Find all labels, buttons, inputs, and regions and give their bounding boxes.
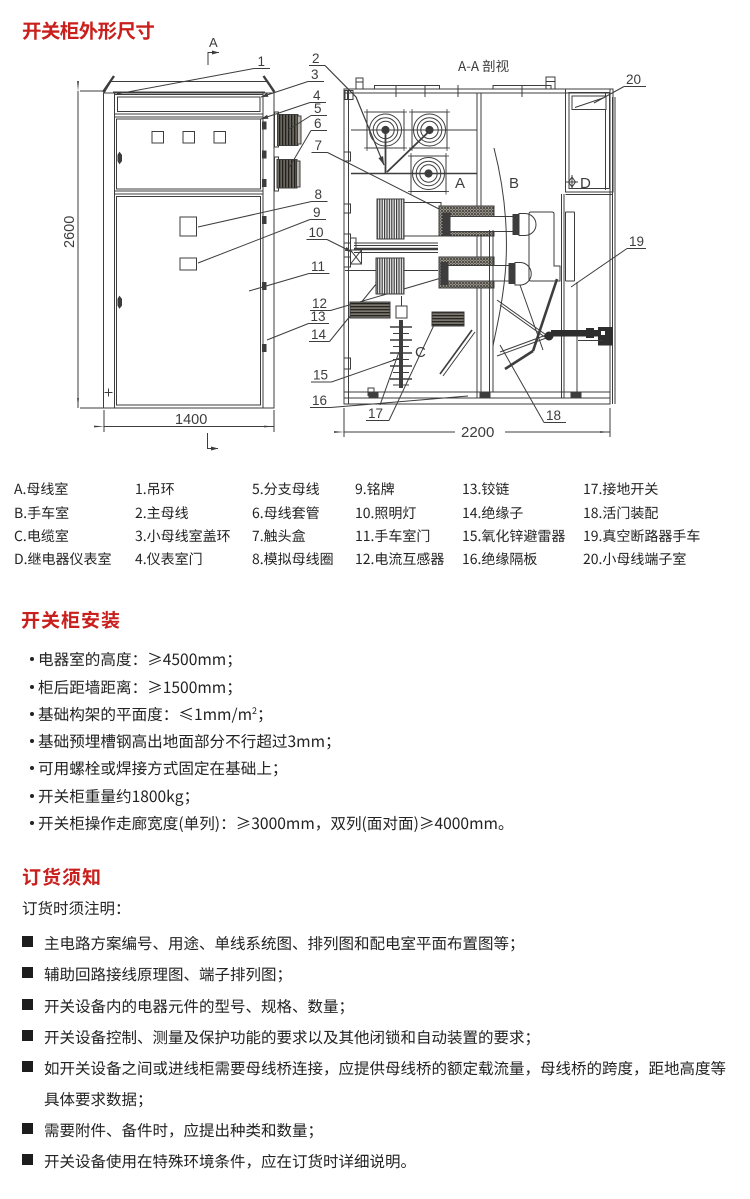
svg-text:13: 13	[311, 309, 326, 324]
svg-text:2200: 2200	[461, 424, 494, 441]
svg-text:D: D	[580, 175, 591, 192]
svg-text:10: 10	[309, 225, 324, 240]
svg-text:11: 11	[311, 259, 325, 274]
svg-text:18: 18	[546, 408, 561, 423]
svg-text:5: 5	[314, 101, 322, 116]
svg-text:14: 14	[311, 327, 327, 342]
svg-text:2600: 2600	[62, 216, 78, 248]
svg-text:20: 20	[626, 72, 641, 87]
svg-text:3: 3	[311, 67, 319, 82]
svg-text:A: A	[209, 35, 218, 50]
svg-text:A-A 剖视: A-A 剖视	[458, 55, 510, 75]
svg-text:16: 16	[312, 393, 327, 408]
svg-text:19: 19	[629, 234, 644, 249]
svg-text:8: 8	[315, 187, 323, 202]
svg-text:17: 17	[368, 406, 383, 421]
svg-text:1400: 1400	[175, 412, 207, 428]
svg-text:B: B	[509, 175, 519, 192]
svg-text:1: 1	[258, 54, 266, 69]
svg-text:6: 6	[314, 116, 322, 131]
svg-text:7: 7	[315, 138, 323, 153]
svg-text:15: 15	[313, 368, 328, 383]
svg-text:9: 9	[313, 205, 321, 220]
svg-text:2: 2	[312, 51, 320, 66]
svg-text:A: A	[455, 175, 465, 192]
